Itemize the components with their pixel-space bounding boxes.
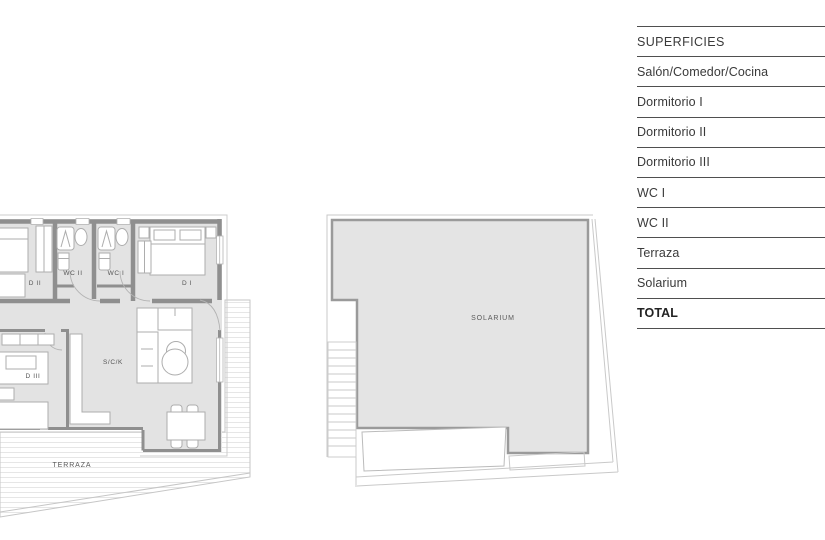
surfaces-row-wc-1: WC I	[637, 177, 825, 207]
room-label-terraza: TERRAZA	[53, 462, 92, 469]
surfaces-row-dormitorio-3: Dormitorio III	[637, 147, 825, 177]
bed-d1-pillow-right	[180, 230, 201, 240]
bed-d2-pillow	[0, 228, 28, 239]
surfaces-row-wc-2: WC II	[637, 207, 825, 237]
toilet-tank-wc2	[58, 253, 69, 259]
armchair-seat	[162, 349, 188, 375]
room-label-wc2: WC II	[63, 270, 82, 277]
surfaces-row-label: Dormitorio III	[637, 155, 710, 169]
bed-d3-2	[0, 402, 48, 429]
apartment-plan: D II WC II WC I D I D III S/C/K TERRAZA	[0, 215, 250, 517]
surfaces-header-row: SUPERFICIES	[637, 26, 825, 56]
toilet-tank-wc1	[99, 253, 110, 259]
sofa	[137, 332, 158, 383]
solarium-label: SOLARIUM	[471, 315, 515, 322]
nightstand-d1-left	[139, 227, 149, 238]
wardrobe-d3	[2, 334, 54, 345]
surfaces-row-label: Dormitorio I	[637, 95, 703, 109]
surfaces-row-label: Solarium	[637, 276, 687, 290]
surfaces-total-row: TOTAL	[637, 298, 825, 329]
dining-table	[167, 412, 205, 440]
surfaces-row-label: WC II	[637, 216, 669, 230]
nightstand-d2	[0, 274, 25, 297]
solarium-floor	[332, 220, 588, 453]
surfaces-row-label: Dormitorio II	[637, 125, 706, 139]
surfaces-row-solarium: Solarium	[637, 268, 825, 298]
room-label-d3: D III	[26, 373, 41, 380]
sink-wc2	[75, 229, 87, 246]
surfaces-row-dormitorio-2: Dormitorio II	[637, 117, 825, 147]
bed-d3-1-pillow	[6, 356, 36, 369]
solarium-plan: SOLARIUM	[327, 215, 618, 487]
side-table-d3	[0, 388, 14, 400]
furniture-d1	[138, 227, 216, 275]
surfaces-row-dormitorio-1: Dormitorio I	[637, 86, 825, 116]
surfaces-row-label: Terraza	[637, 246, 679, 260]
room-label-d1: D I	[182, 280, 192, 287]
stairs	[328, 342, 356, 457]
sink-wc1	[116, 229, 128, 246]
surfaces-header-label: SUPERFICIES	[637, 35, 725, 49]
surfaces-row-label: WC I	[637, 186, 665, 200]
surfaces-row-salon: Salón/Comedor/Cocina	[637, 56, 825, 86]
room-label-d2: D II	[29, 280, 42, 287]
surfaces-table: SUPERFICIES Salón/Comedor/Cocina Dormito…	[637, 26, 825, 329]
room-label-wc1: WC I	[108, 270, 125, 277]
solarium-lower-opening	[362, 427, 506, 471]
surfaces-row-label: Salón/Comedor/Cocina	[637, 65, 768, 79]
nightstand-d1-right	[206, 227, 216, 238]
surfaces-total-label: TOTAL	[637, 306, 678, 320]
surfaces-row-terraza: Terraza	[637, 237, 825, 267]
bed-d1-pillow-left	[154, 230, 175, 240]
room-label-sck: S/C/K	[103, 359, 123, 366]
